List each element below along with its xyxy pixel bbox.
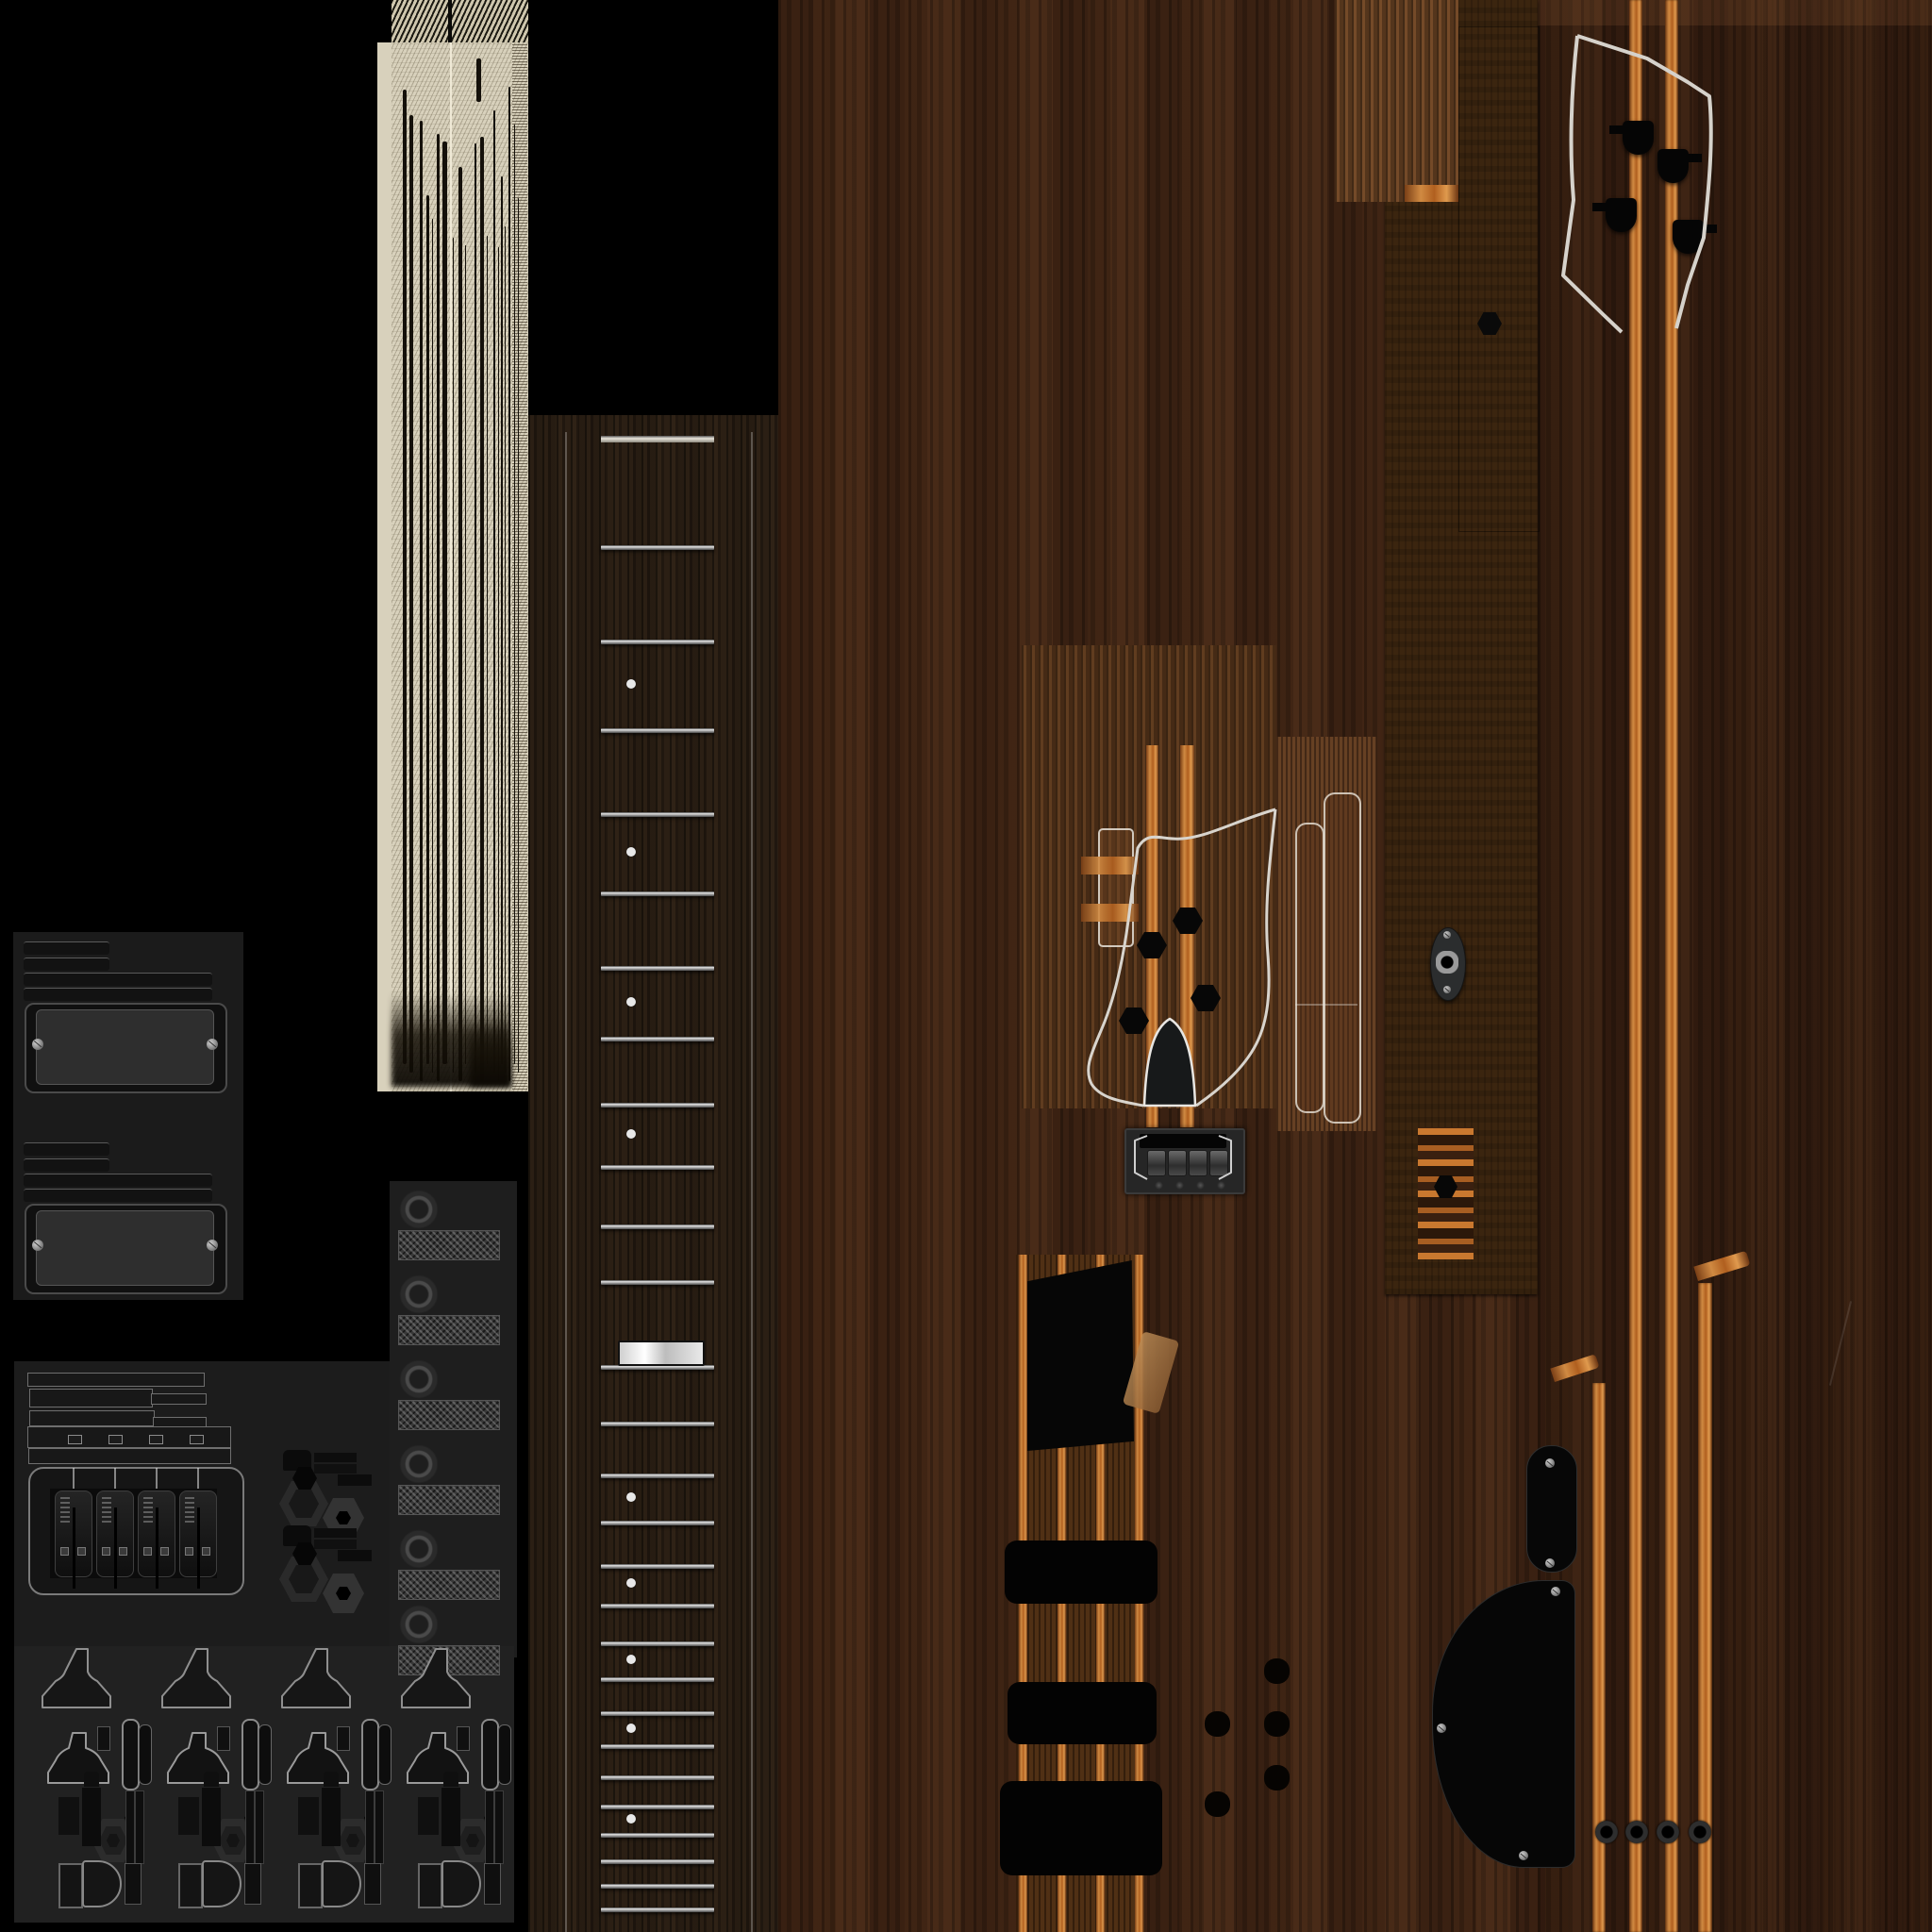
tuner-rect-small (337, 1726, 350, 1751)
tuner-bottom-bar-right (484, 1863, 501, 1905)
tuner-post-bar (494, 1790, 504, 1864)
tuner-block-cap (443, 1772, 458, 1787)
tuner-block (418, 1797, 439, 1835)
tuner-cylinder (241, 1719, 259, 1790)
tuner-bottom-bar (58, 1863, 83, 1908)
outline-layer (0, 0, 1932, 1932)
tuner-block-tall (322, 1788, 341, 1846)
tuner-block-cap (204, 1772, 219, 1787)
tuner-key-outline (282, 1649, 350, 1707)
tuner-cylinder-small (378, 1724, 391, 1785)
tuner-block (178, 1797, 199, 1835)
tuner-block-tall (82, 1788, 101, 1846)
tuner-post-bar (255, 1790, 264, 1864)
tuner-rect-small (97, 1726, 110, 1751)
tuner-bottom-bar-right (364, 1863, 381, 1905)
tuner-bottom-bar-right (244, 1863, 261, 1905)
tuner-cylinder-small (139, 1724, 152, 1785)
tuner-bottom-bar (298, 1863, 323, 1908)
tuner-bottom-bar (178, 1863, 203, 1908)
tuner-cylinder (122, 1719, 140, 1790)
tuner-block-tall (441, 1788, 460, 1846)
headstock-front-outline-right (1196, 809, 1275, 1106)
tuner-post-bar (245, 1790, 255, 1864)
tuner-bottom-bar (418, 1863, 442, 1908)
tuner-block (298, 1797, 319, 1835)
tuner-key-outline (42, 1649, 110, 1707)
tuner-cylinder (361, 1719, 379, 1790)
tuner-bottom-bar-right (125, 1863, 142, 1905)
tuner-block-cap (84, 1772, 99, 1787)
tuner-rect-small (217, 1726, 230, 1751)
tuner-key-outline (162, 1649, 230, 1707)
tuner-cylinder-small (498, 1724, 511, 1785)
bridge-bracket-right (1219, 1136, 1231, 1179)
texture-atlas-canvas (0, 0, 1932, 1932)
tuner-key-outline (402, 1649, 470, 1707)
tuner-block-tall (202, 1788, 221, 1846)
tuner-block (58, 1797, 79, 1835)
tuner-post-bar (135, 1790, 144, 1864)
bridge-bracket-left (1135, 1136, 1147, 1179)
tuner-rect-small (457, 1726, 470, 1751)
tuner-post-bar (365, 1790, 375, 1864)
tuner-cylinder (481, 1719, 499, 1790)
tuner-post-bar (125, 1790, 135, 1864)
tuner-post-bar (485, 1790, 494, 1864)
tuner-block-cap (324, 1772, 339, 1787)
truss-rod-cover (1144, 1019, 1195, 1106)
headstock-back-outline-right (1577, 36, 1711, 328)
tuner-cylinder-small (258, 1724, 272, 1785)
tuner-post-bar (375, 1790, 384, 1864)
headstock-back-outline-left (1563, 36, 1622, 332)
